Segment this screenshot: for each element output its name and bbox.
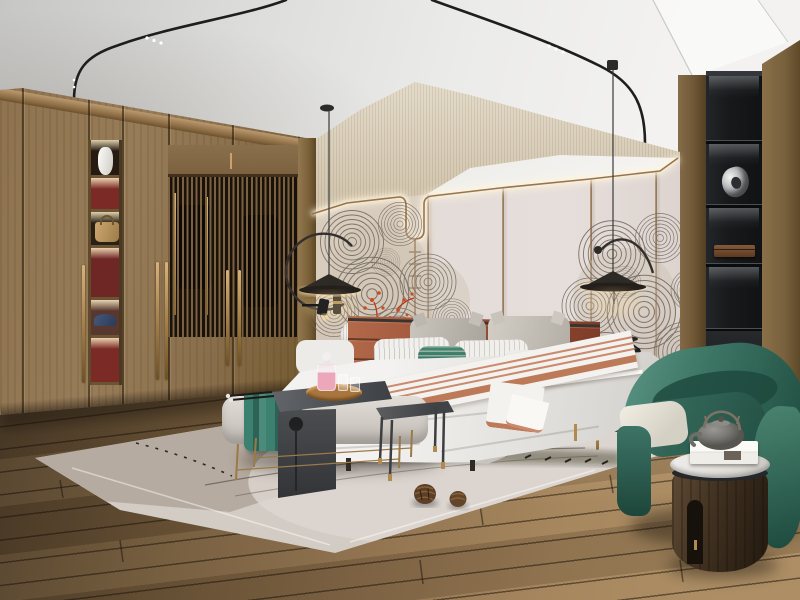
- teapot-details: [0, 0, 800, 600]
- bedroom-render: [0, 0, 800, 600]
